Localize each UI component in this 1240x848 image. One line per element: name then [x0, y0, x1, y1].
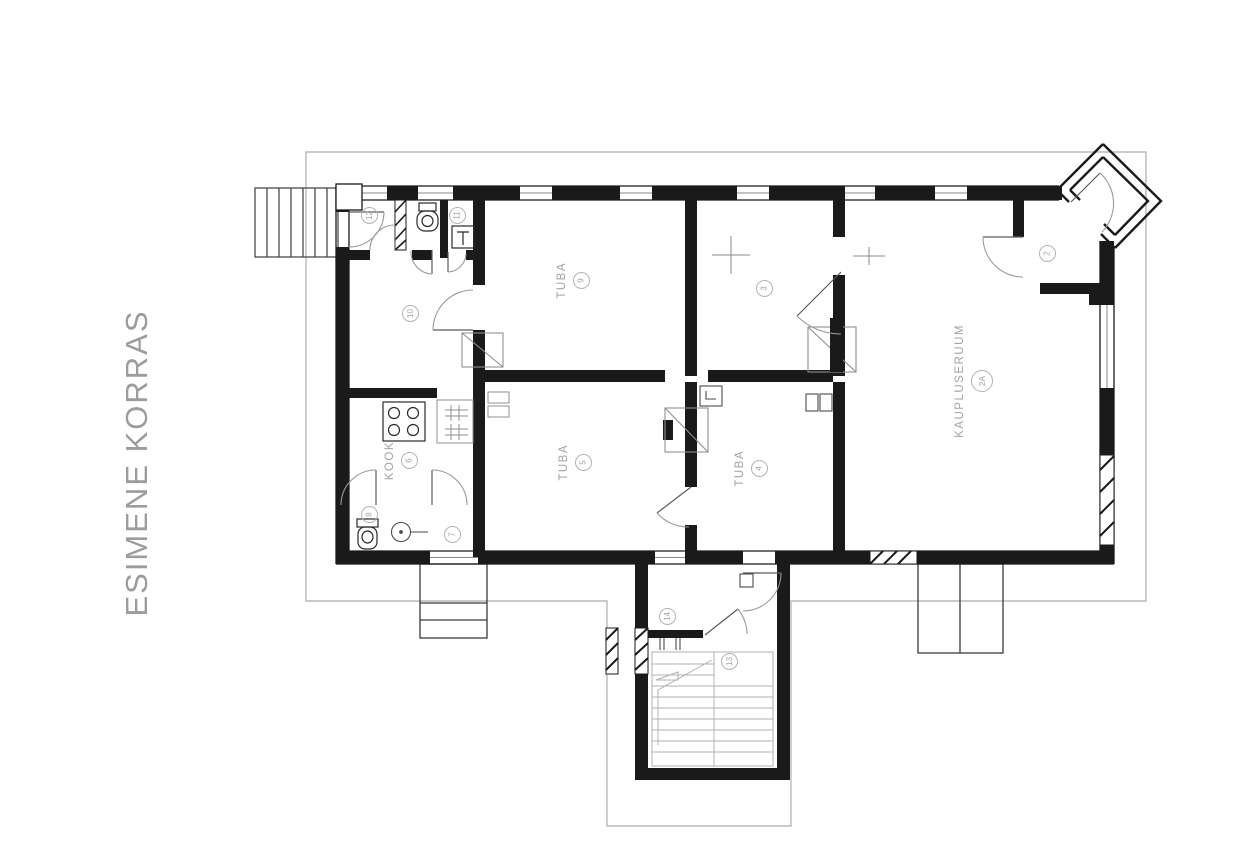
- room-name: TUBA: [556, 262, 568, 299]
- toilet-room-8: [357, 519, 378, 549]
- room-name: KÖÖK: [384, 441, 396, 480]
- room-number-badge: 11: [449, 207, 466, 224]
- wall-box-tuba4: [700, 386, 722, 406]
- room-label-2: 2: [1039, 245, 1056, 262]
- room-label-tuba-4: TUBA 4: [734, 450, 768, 487]
- hatched-wall-sections: [395, 200, 1114, 674]
- room-number-badge: 13: [721, 653, 738, 670]
- sink-unit-tuba5: [488, 392, 509, 417]
- room-number-badge: 10: [402, 305, 419, 322]
- room-name: KAUPLUSERUUM: [954, 324, 966, 438]
- room-number-badge: 5: [575, 454, 592, 471]
- doors: [341, 173, 1114, 635]
- stove-kitchen: [383, 402, 425, 441]
- coat-rack-ticks: [660, 638, 680, 650]
- room-number-badge: 6: [401, 452, 418, 469]
- room-number-badge: 3: [756, 280, 773, 297]
- room-number-badge: 2: [1039, 245, 1056, 262]
- room-label-3: 3: [756, 280, 773, 297]
- room-number-badge: 9: [573, 272, 590, 289]
- room-label-8: 8: [361, 506, 378, 523]
- staircase-main: [652, 652, 773, 766]
- room-label-11: 11: [449, 207, 466, 224]
- round-washbasin: [392, 523, 429, 542]
- porch-bottom-right: [918, 564, 1003, 653]
- toilet-closet-top: [417, 203, 438, 231]
- chimney-symbols: [462, 318, 856, 452]
- floor-plan-drawing: [0, 0, 1240, 848]
- room-number-badge: 4: [751, 460, 768, 477]
- radiator: [740, 574, 753, 587]
- room-label-kaupluseruum-2a: KAUPLUSERUUM 2A: [954, 324, 993, 438]
- room-label-12: 12: [361, 207, 378, 224]
- corner-pier: [336, 184, 362, 210]
- exterior-stair-top-left: [255, 188, 338, 257]
- room-label-10: 10: [402, 305, 419, 322]
- room-number-badge: 8: [361, 506, 378, 523]
- interior-walls: [349, 200, 1100, 780]
- room-label-tuba-5: TUBA 5: [558, 444, 592, 481]
- room-label-7: 7: [444, 526, 461, 543]
- room-number-badge: 12: [361, 207, 378, 224]
- room-label-tuba-9: TUBA 9: [556, 262, 590, 299]
- kitchen-counter: [437, 400, 473, 443]
- room-label-14: 14: [659, 608, 676, 625]
- floor-plan-page: ESIMENE KORRAS: [0, 0, 1240, 848]
- survey-cross-marks: [712, 236, 885, 274]
- washbasin-closet-11: [452, 226, 474, 248]
- room-number-badge: 14: [659, 608, 676, 625]
- room-number-badge: 2A: [971, 370, 993, 392]
- room-name: TUBA: [734, 450, 746, 487]
- room-name: TUBA: [558, 444, 570, 481]
- electric-panels: [806, 394, 832, 411]
- room-label-kook-6: KÖÖK 6: [384, 441, 418, 480]
- room-label-13: 13: [721, 653, 738, 670]
- room-number-badge: 7: [444, 526, 461, 543]
